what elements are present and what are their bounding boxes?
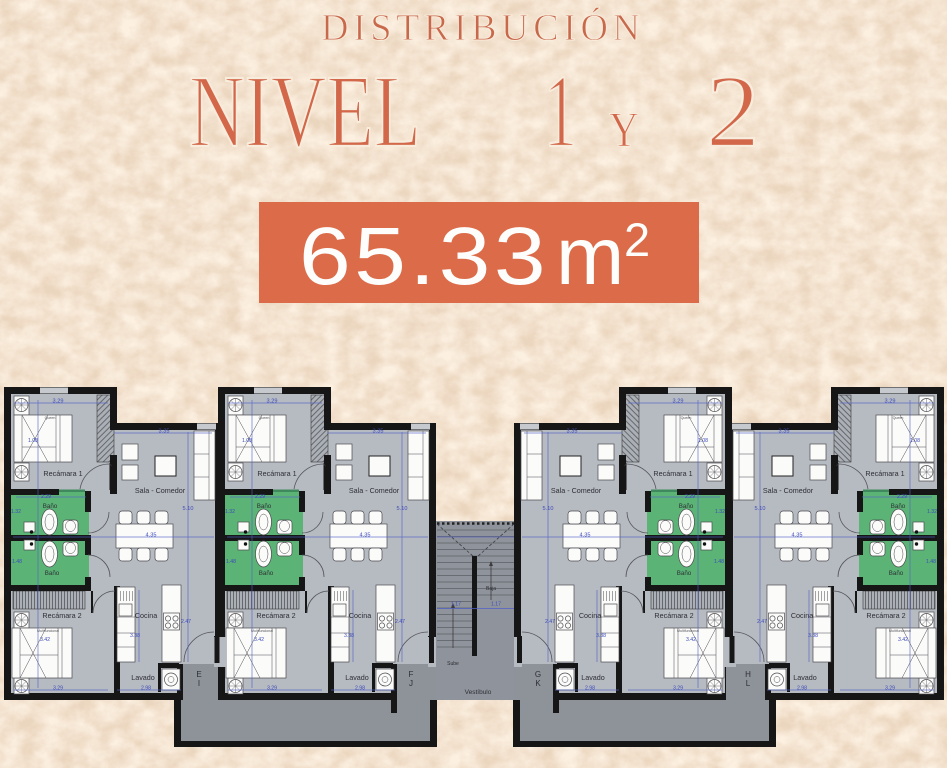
svg-text:3.35: 3.35 — [159, 429, 170, 435]
svg-text:1.17: 1.17 — [451, 602, 461, 608]
svg-text:3.35: 3.35 — [567, 429, 578, 435]
svg-text:Multifuncional: Multifuncional — [889, 629, 911, 633]
svg-text:Multifuncional: Multifuncional — [677, 629, 699, 633]
svg-text:2.29: 2.29 — [255, 494, 265, 500]
svg-text:Recámara 1: Recámara 1 — [43, 469, 82, 478]
svg-text:3.29: 3.29 — [267, 686, 277, 692]
svg-text:3.29: 3.29 — [53, 399, 64, 405]
svg-text:3.38: 3.38 — [596, 633, 606, 639]
svg-text:Recámara 2: Recámara 2 — [256, 611, 295, 620]
svg-text:1.32: 1.32 — [715, 509, 725, 515]
svg-text:3.35: 3.35 — [779, 429, 790, 435]
svg-text:Baño: Baño — [257, 503, 272, 510]
svg-text:Y: Y — [609, 101, 639, 157]
svg-text:DISTRIBUCIÓN: DISTRIBUCIÓN — [321, 7, 646, 49]
svg-text:1.32: 1.32 — [225, 509, 235, 515]
svg-text:3.29: 3.29 — [885, 686, 895, 692]
svg-text:1.08: 1.08 — [242, 438, 252, 444]
svg-text:1: 1 — [544, 54, 577, 169]
svg-text:Queen: Queen — [893, 416, 904, 420]
svg-text:Recámara 2: Recámara 2 — [42, 611, 81, 620]
svg-text:2: 2 — [624, 213, 650, 266]
svg-text:Lavado: Lavado — [581, 673, 605, 682]
svg-text:Multifuncional: Multifuncional — [251, 629, 273, 633]
svg-text:K: K — [535, 679, 541, 688]
svg-text:65.33: 65.33 — [299, 211, 549, 302]
svg-text:4.35: 4.35 — [580, 533, 591, 539]
svg-text:3.38: 3.38 — [130, 633, 140, 639]
svg-text:2.47: 2.47 — [181, 619, 191, 625]
svg-text:2: 2 — [706, 54, 760, 169]
svg-text:1.08: 1.08 — [28, 438, 38, 444]
svg-text:Recámara 1: Recámara 1 — [653, 469, 692, 478]
svg-text:I: I — [198, 679, 200, 688]
svg-text:1.08: 1.08 — [910, 438, 920, 444]
svg-text:3.42: 3.42 — [898, 637, 908, 643]
svg-text:Cocina: Cocina — [135, 611, 157, 620]
svg-text:Cocina: Cocina — [791, 611, 813, 620]
svg-text:J: J — [409, 679, 413, 688]
svg-text:3.38: 3.38 — [344, 633, 354, 639]
svg-text:Recámara 1: Recámara 1 — [865, 469, 904, 478]
svg-text:3.29: 3.29 — [885, 399, 896, 405]
svg-text:Queen: Queen — [45, 416, 56, 420]
svg-text:5.10: 5.10 — [755, 506, 766, 512]
svg-text:Lavado: Lavado — [345, 673, 369, 682]
svg-text:3.29: 3.29 — [673, 686, 683, 692]
svg-text:NIVEL: NIVEL — [189, 54, 421, 169]
svg-text:m: m — [556, 211, 624, 302]
svg-text:Cocina: Cocina — [579, 611, 601, 620]
svg-text:2.98: 2.98 — [141, 686, 151, 692]
svg-text:Sala - Comedor: Sala - Comedor — [135, 486, 186, 495]
svg-text:3.42: 3.42 — [254, 637, 264, 643]
svg-text:F: F — [409, 670, 414, 679]
svg-text:5.10: 5.10 — [397, 506, 408, 512]
svg-text:3.42: 3.42 — [686, 637, 696, 643]
svg-text:1.32: 1.32 — [11, 509, 21, 515]
svg-text:1.48: 1.48 — [226, 559, 236, 565]
svg-text:2.47: 2.47 — [395, 619, 405, 625]
svg-text:2.29: 2.29 — [41, 494, 51, 500]
svg-text:3.29: 3.29 — [53, 686, 63, 692]
svg-text:1.48: 1.48 — [12, 559, 22, 565]
svg-text:G: G — [535, 670, 541, 679]
svg-text:Sala - Comedor: Sala - Comedor — [763, 486, 814, 495]
svg-text:Queen: Queen — [259, 416, 270, 420]
svg-text:1.48: 1.48 — [926, 559, 936, 565]
svg-text:Lavado: Lavado — [131, 673, 155, 682]
svg-text:Recámara 2: Recámara 2 — [654, 611, 693, 620]
svg-text:L: L — [746, 679, 751, 688]
svg-text:Baño: Baño — [677, 570, 692, 577]
svg-text:4.35: 4.35 — [146, 533, 157, 539]
svg-text:2.98: 2.98 — [355, 686, 365, 692]
svg-text:Sala - Comedor: Sala - Comedor — [349, 486, 400, 495]
svg-text:Baja: Baja — [486, 586, 496, 592]
svg-text:5.10: 5.10 — [183, 506, 194, 512]
svg-text:2.98: 2.98 — [585, 686, 595, 692]
svg-text:Cocina: Cocina — [349, 611, 371, 620]
svg-text:2.29: 2.29 — [685, 494, 695, 500]
svg-text:Sube: Sube — [447, 661, 459, 667]
svg-text:3.29: 3.29 — [267, 399, 278, 405]
svg-text:5.10: 5.10 — [543, 506, 554, 512]
svg-text:Recámara 2: Recámara 2 — [866, 611, 905, 620]
svg-text:Sala - Comedor: Sala - Comedor — [551, 486, 602, 495]
svg-text:Baño: Baño — [679, 503, 694, 510]
svg-text:2.47: 2.47 — [757, 619, 767, 625]
svg-text:Recámara 1: Recámara 1 — [257, 469, 296, 478]
svg-text:3.42: 3.42 — [40, 637, 50, 643]
svg-text:4.35: 4.35 — [792, 533, 803, 539]
svg-text:2.47: 2.47 — [545, 619, 555, 625]
svg-text:Baño: Baño — [891, 503, 906, 510]
svg-text:Lavado: Lavado — [793, 673, 817, 682]
svg-text:2.98: 2.98 — [797, 686, 807, 692]
svg-text:Baño: Baño — [45, 570, 60, 577]
svg-text:1.08: 1.08 — [698, 438, 708, 444]
svg-text:3.35: 3.35 — [373, 429, 384, 435]
svg-text:2.29: 2.29 — [897, 494, 907, 500]
svg-text:Baño: Baño — [43, 503, 58, 510]
svg-text:3.38: 3.38 — [808, 633, 818, 639]
svg-text:1.17: 1.17 — [491, 602, 501, 608]
svg-text:3.29: 3.29 — [673, 399, 684, 405]
svg-text:Baño: Baño — [889, 570, 904, 577]
svg-text:4.35: 4.35 — [360, 533, 371, 539]
svg-text:H: H — [745, 670, 751, 679]
svg-text:Vestíbulo: Vestíbulo — [465, 689, 492, 696]
svg-text:Baño: Baño — [259, 570, 274, 577]
svg-text:1.32: 1.32 — [927, 509, 937, 515]
svg-text:1.48: 1.48 — [714, 559, 724, 565]
svg-text:E: E — [196, 670, 201, 679]
svg-text:Queen: Queen — [681, 416, 692, 420]
svg-text:Multifuncional: Multifuncional — [37, 629, 59, 633]
